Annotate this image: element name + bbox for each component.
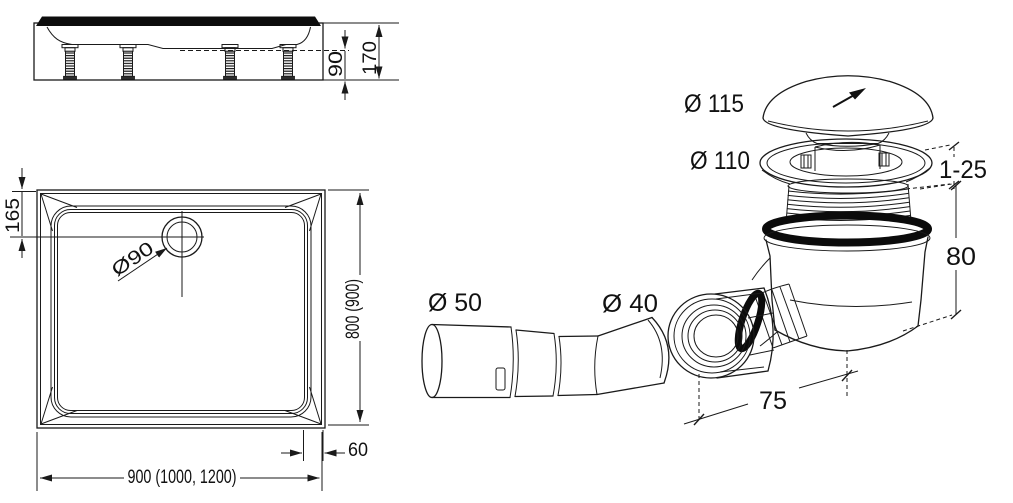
drain-assembly-view: Ø 115 Ø 110 1-25 [422, 76, 987, 425]
tray-basin-profile [47, 27, 311, 49]
dim-flange-diameter: Ø 110 [690, 147, 750, 175]
cap-arrow-mark [833, 88, 866, 107]
dim-total-height: 170 [360, 41, 381, 75]
dim-width: 900 (1000, 1200) [128, 467, 237, 488]
dim-body-height: 80 [946, 243, 976, 271]
corner-mold-lines [41, 194, 321, 424]
foot-leg [222, 45, 238, 80]
drain-hole: Ø90 [10, 211, 204, 297]
dim-length: 800 (900) [343, 279, 364, 339]
adjustable-feet [62, 45, 296, 80]
technical-drawing-canvas: 90 170 Ø90 [0, 0, 1013, 503]
dim-rim-width: 60 [348, 440, 368, 461]
hose-adapter [422, 318, 669, 398]
technical-drawing-page: 90 170 Ø90 [0, 0, 1013, 503]
dim-clamp-range: 1-25 [939, 156, 987, 184]
dim-basin-height: 90 [326, 51, 347, 77]
compression-nut [668, 288, 774, 378]
clamp-range-dimension: 1-25 [906, 142, 987, 189]
dim-outlet-length: 75 [759, 387, 787, 415]
foot-leg [120, 45, 136, 80]
body-height-dimension: 80 [903, 181, 976, 331]
top-view: Ø90 165 800 (900) 60 900 [3, 168, 369, 491]
tray-apron-outline [34, 23, 323, 80]
dim-drain-center-offset: 165 [3, 198, 24, 233]
foot-leg [280, 45, 296, 80]
adapter-tab [496, 368, 505, 390]
dim-drain-hole: Ø90 [108, 238, 158, 281]
flange-clips [801, 153, 889, 168]
tray-top-rim-band [36, 17, 321, 27]
dim-cap-diameter: Ø 115 [684, 90, 744, 118]
drain-cap [763, 76, 933, 147]
tray-outer-edge-inner-line [41, 194, 322, 425]
side-view: 90 170 [34, 17, 399, 101]
dim-adapter-outer: Ø 50 [428, 289, 482, 317]
tray-rim-lines [51, 206, 311, 417]
dim-adapter-inner: Ø 40 [602, 290, 658, 318]
side-view-dimensions: 90 170 [323, 23, 399, 100]
foot-leg [62, 45, 78, 80]
tray-outer-edge [37, 190, 325, 428]
